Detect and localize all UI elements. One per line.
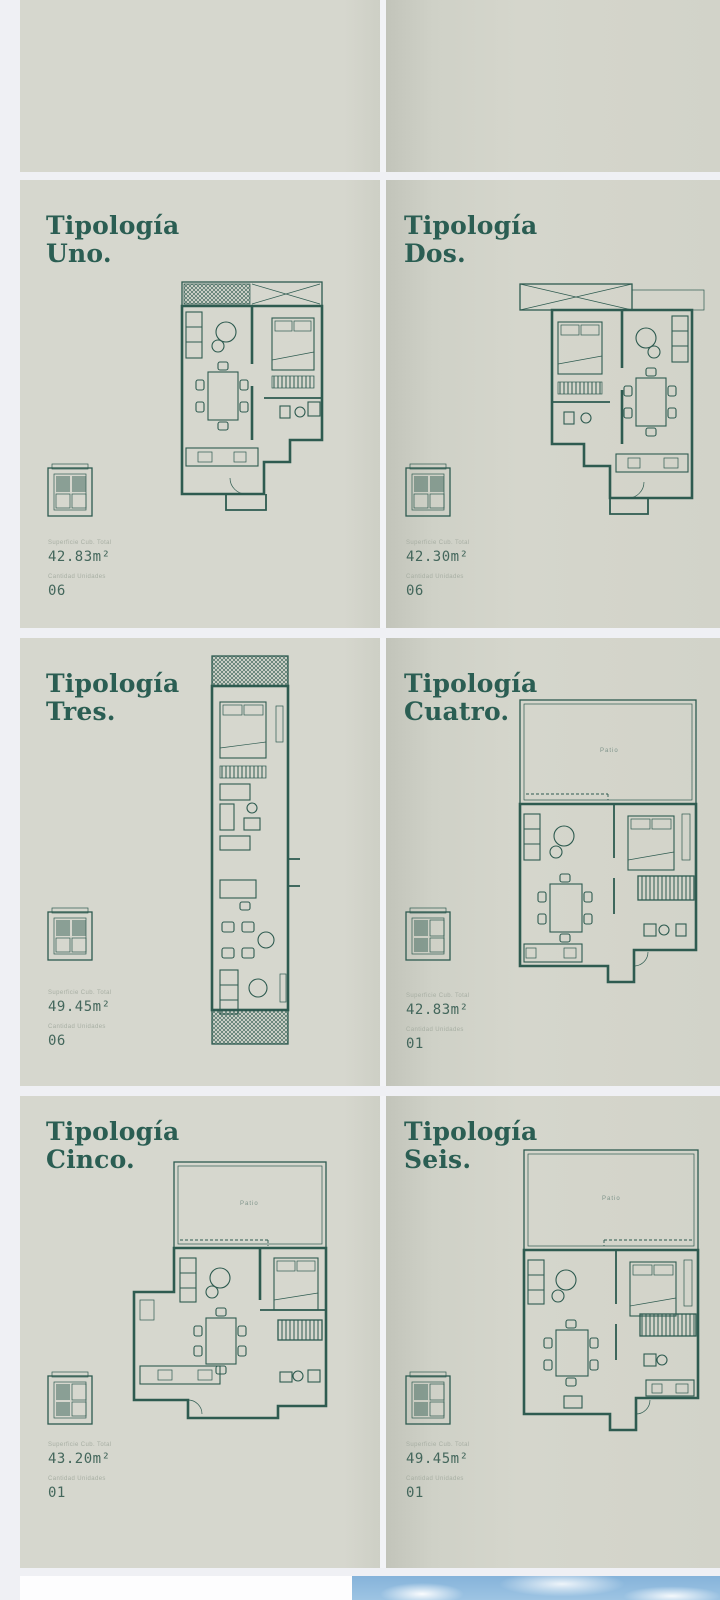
key-plan-tres bbox=[46, 906, 94, 964]
area-label: Superficie Cub. Total bbox=[48, 990, 112, 996]
title-line2: Dos. bbox=[404, 239, 466, 268]
page-blank-right bbox=[386, 0, 720, 172]
units-label: Cantidad Unidades bbox=[406, 1476, 470, 1482]
area-label: Superficie Cub. Total bbox=[48, 1442, 112, 1448]
spread-cinco-seis: Tipología Cinco. Patio bbox=[0, 1096, 720, 1568]
panel-tipologia-dos: Tipología Dos. bbox=[386, 180, 720, 628]
title-line2: Uno. bbox=[46, 239, 112, 268]
spread-uno-dos: Tipología Uno. bbox=[0, 180, 720, 628]
area-label: Superficie Cub. Total bbox=[406, 1442, 470, 1448]
panel-meta-cuatro: Superficie Cub. Total 42.83m² Cantidad U… bbox=[406, 993, 470, 1061]
title-line2: Seis. bbox=[404, 1145, 471, 1174]
sky-photo bbox=[352, 1576, 720, 1600]
key-plan-dos bbox=[404, 462, 452, 520]
key-plan-cuatro bbox=[404, 906, 452, 964]
floor-plan-dos bbox=[518, 282, 706, 520]
panel-meta-seis: Superficie Cub. Total 49.45m² Cantidad U… bbox=[406, 1442, 470, 1510]
panel-title-dos: Tipología Dos. bbox=[404, 212, 537, 267]
panel-title-tres: Tipología Tres. bbox=[46, 670, 179, 725]
panel-tipologia-tres: Tipología Tres. bbox=[20, 638, 380, 1086]
area-label: Superficie Cub. Total bbox=[48, 540, 112, 546]
units-value: 01 bbox=[48, 1485, 112, 1501]
units-label: Cantidad Unidades bbox=[48, 574, 112, 580]
units-label: Cantidad Unidades bbox=[48, 1476, 112, 1482]
title-line1: Tipología bbox=[46, 211, 179, 240]
patio-label: Patio bbox=[600, 748, 619, 754]
area-value: 49.45m² bbox=[406, 1451, 470, 1467]
title-line2: Tres. bbox=[46, 697, 116, 726]
units-label: Cantidad Unidades bbox=[406, 1027, 470, 1033]
panel-meta-uno: Superficie Cub. Total 42.83m² Cantidad U… bbox=[48, 540, 112, 608]
title-line1: Tipología bbox=[404, 669, 537, 698]
panel-meta-dos: Superficie Cub. Total 42.30m² Cantidad U… bbox=[406, 540, 470, 608]
title-line1: Tipología bbox=[404, 1117, 537, 1146]
area-value: 42.30m² bbox=[406, 549, 470, 565]
panel-title-uno: Tipología Uno. bbox=[46, 212, 179, 267]
spread-tres-cuatro: Tipología Tres. bbox=[0, 638, 720, 1086]
units-value: 01 bbox=[406, 1485, 470, 1501]
spread-top-partial bbox=[0, 0, 720, 172]
area-value: 42.83m² bbox=[406, 1002, 470, 1018]
panel-meta-tres: Superficie Cub. Total 49.45m² Cantidad U… bbox=[48, 990, 112, 1058]
units-value: 01 bbox=[406, 1036, 470, 1052]
patio-label: Patio bbox=[602, 1196, 621, 1202]
panel-tipologia-cuatro: Tipología Cuatro. Patio bbox=[386, 638, 720, 1086]
area-value: 42.83m² bbox=[48, 549, 112, 565]
units-label: Cantidad Unidades bbox=[406, 574, 470, 580]
floor-plan-tres bbox=[200, 654, 300, 1046]
floor-plan-uno bbox=[168, 280, 336, 520]
floor-plan-seis: Patio bbox=[516, 1148, 706, 1444]
panel-tipologia-cinco: Tipología Cinco. Patio bbox=[20, 1096, 380, 1568]
page-blank-left bbox=[20, 0, 380, 172]
title-line1: Tipología bbox=[46, 669, 179, 698]
title-line2: Cuatro. bbox=[404, 697, 509, 726]
area-label: Superficie Cub. Total bbox=[406, 540, 470, 546]
floor-plan-cinco: Patio bbox=[128, 1160, 332, 1456]
brochure-viewer: Tipología Uno. bbox=[0, 0, 720, 1600]
units-value: 06 bbox=[406, 583, 470, 599]
panel-meta-cinco: Superficie Cub. Total 43.20m² Cantidad U… bbox=[48, 1442, 112, 1510]
key-plan-cinco bbox=[46, 1370, 94, 1428]
panel-tipologia-uno: Tipología Uno. bbox=[20, 180, 380, 628]
patio-label: Patio bbox=[240, 1201, 259, 1207]
panel-tipologia-seis: Tipología Seis. Patio bbox=[386, 1096, 720, 1568]
key-plan-seis bbox=[404, 1370, 452, 1428]
spread-bottom-partial bbox=[0, 1576, 720, 1600]
units-value: 06 bbox=[48, 583, 112, 599]
units-value: 06 bbox=[48, 1033, 112, 1049]
area-value: 43.20m² bbox=[48, 1451, 112, 1467]
floor-plan-cuatro: Patio bbox=[512, 698, 704, 1000]
title-line2: Cinco. bbox=[46, 1145, 135, 1174]
title-line1: Tipología bbox=[46, 1117, 179, 1146]
area-label: Superficie Cub. Total bbox=[406, 993, 470, 999]
area-value: 49.45m² bbox=[48, 999, 112, 1015]
page-blank-white bbox=[20, 1576, 352, 1600]
title-line1: Tipología bbox=[404, 211, 537, 240]
key-plan-uno bbox=[46, 462, 94, 520]
units-label: Cantidad Unidades bbox=[48, 1024, 112, 1030]
